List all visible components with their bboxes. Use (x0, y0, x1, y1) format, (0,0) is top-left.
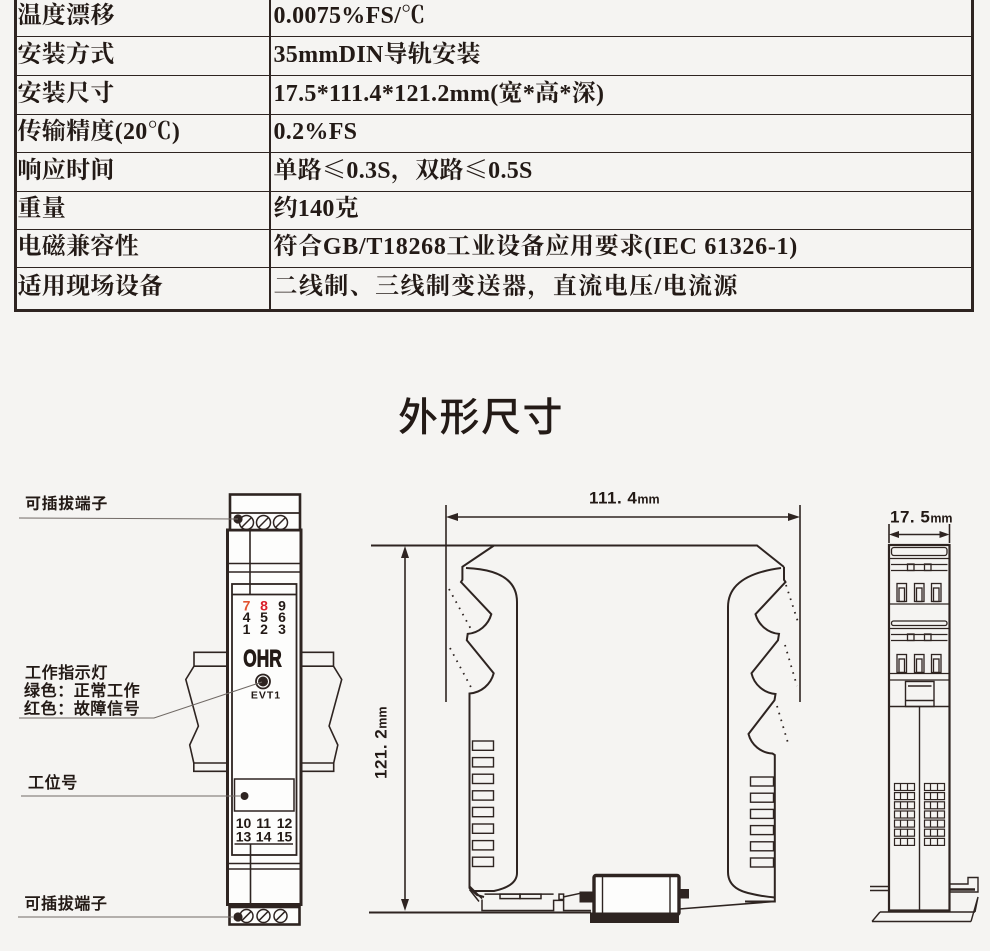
svg-text:EVT1: EVT1 (251, 689, 281, 701)
svg-text:OHR: OHR (243, 646, 281, 672)
svg-text:1: 1 (243, 621, 251, 637)
svg-text:工作指示灯: 工作指示灯 (25, 663, 108, 682)
svg-text:13: 13 (236, 828, 252, 844)
svg-text:17. 5mm: 17. 5mm (890, 508, 953, 527)
svg-text:工位号: 工位号 (28, 773, 78, 792)
svg-text:可插拔端子: 可插拔端子 (25, 490, 108, 514)
svg-text:3: 3 (278, 621, 286, 637)
svg-text:2: 2 (260, 621, 268, 637)
svg-text:红色：故障信号: 红色：故障信号 (24, 699, 140, 718)
svg-text:121. 2mm: 121. 2mm (372, 707, 391, 780)
svg-text:绿色：正常工作: 绿色：正常工作 (24, 681, 140, 700)
svg-text:可插拔端子: 可插拔端子 (25, 894, 108, 913)
svg-text:14: 14 (256, 828, 272, 844)
svg-text:15: 15 (277, 828, 293, 844)
svg-text:111. 4mm: 111. 4mm (589, 489, 660, 508)
